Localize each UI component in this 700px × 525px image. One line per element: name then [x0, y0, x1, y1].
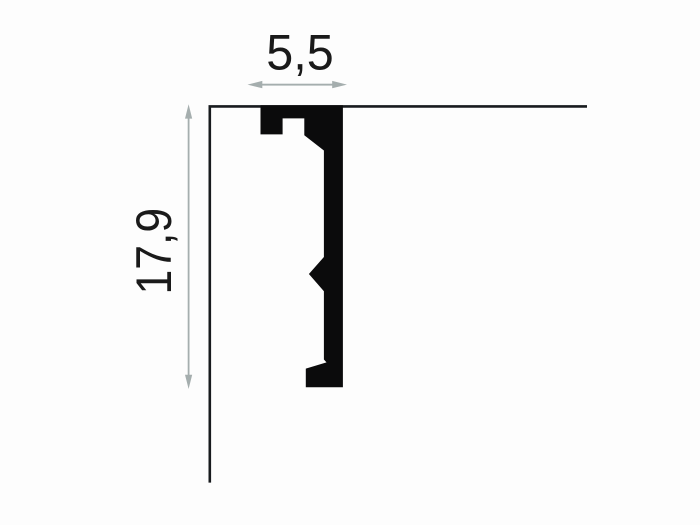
svg-text:5,5: 5,5 — [266, 25, 333, 81]
svg-text:17,9: 17,9 — [126, 208, 182, 295]
